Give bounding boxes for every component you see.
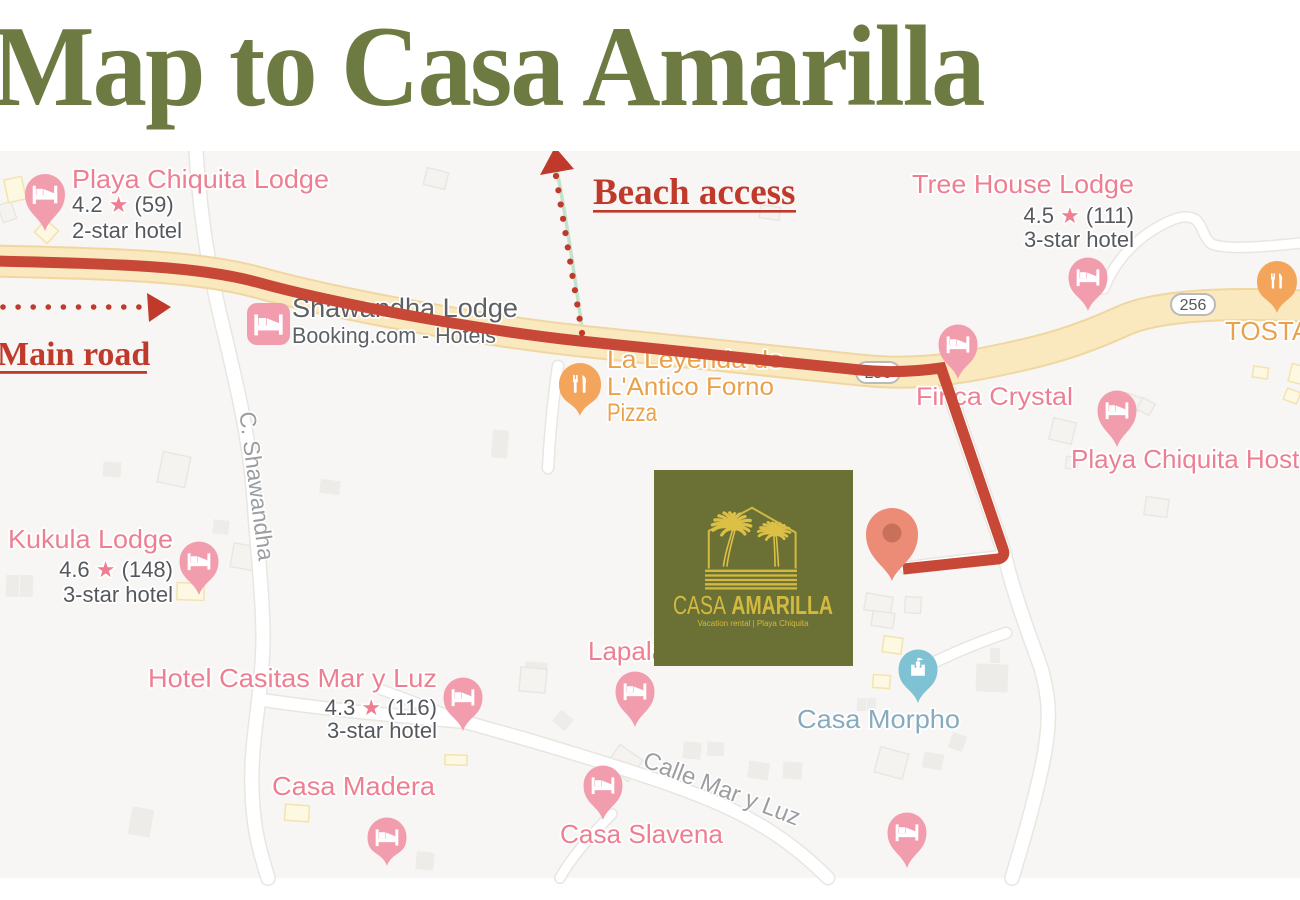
svg-text:4.5 ★ (111): 4.5 ★ (111) [1023, 203, 1134, 228]
svg-text:3-star hotel: 3-star hotel [1024, 227, 1134, 252]
svg-text:4.6 ★ (148): 4.6 ★ (148) [59, 557, 173, 582]
svg-text:CASA AMARILLA: CASA AMARILLA [673, 590, 833, 620]
svg-text:Main road: Main road [0, 336, 150, 373]
svg-text:Beach access: Beach access [593, 172, 795, 213]
svg-text:3-star hotel: 3-star hotel [63, 582, 173, 607]
svg-text:TOSTAD: TOSTAD [1225, 316, 1300, 346]
svg-text:Playa Chiquita Lodge: Playa Chiquita Lodge [72, 164, 329, 194]
svg-text:Kukula Lodge: Kukula Lodge [8, 524, 173, 554]
svg-text:2-star hotel: 2-star hotel [72, 218, 182, 243]
svg-text:Hotel Casitas Mar y Luz: Hotel Casitas Mar y Luz [148, 663, 437, 693]
svg-text:3-star hotel: 3-star hotel [327, 718, 437, 743]
svg-text:Playa Chiquita Host: Playa Chiquita Host [1071, 444, 1300, 474]
svg-text:Casa Morpho: Casa Morpho [797, 704, 960, 734]
svg-text:256: 256 [1180, 297, 1207, 314]
svg-text:Finca Crystal: Finca Crystal [916, 383, 1073, 411]
svg-text:Vacation rental | Playa Chiqui: Vacation rental | Playa Chiquita [698, 619, 809, 628]
svg-text:4.2 ★ (59): 4.2 ★ (59) [72, 192, 174, 217]
svg-text:4.3 ★ (116): 4.3 ★ (116) [325, 695, 437, 720]
svg-text:L'Antico Forno: L'Antico Forno [607, 373, 774, 401]
svg-text:Casa Slavena: Casa Slavena [560, 819, 724, 849]
svg-text:Casa Madera: Casa Madera [272, 771, 436, 801]
svg-text:Tree House Lodge: Tree House Lodge [912, 169, 1134, 199]
svg-text:Pizza: Pizza [607, 399, 657, 427]
